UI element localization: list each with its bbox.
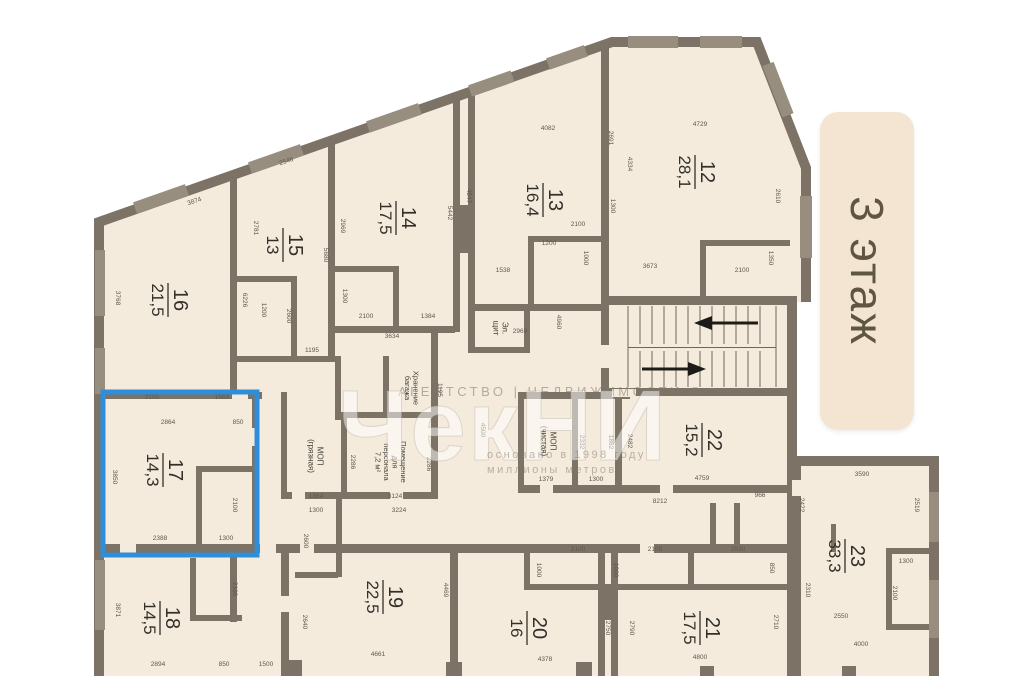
dimension-label: 2790 [628, 621, 635, 636]
dimension-label: 3224 [392, 507, 407, 514]
room-area: 17,5 [680, 611, 699, 644]
room-area: 21,5 [148, 283, 167, 316]
room-area: 16 [507, 619, 526, 638]
dimension-label: 2610 [774, 189, 781, 204]
dimension-label: 4729 [693, 121, 708, 128]
dimension-label: 2286 [349, 455, 356, 470]
dimension-label: 2600 [302, 534, 309, 549]
dimension-label: 2600 [285, 309, 292, 324]
room-number: 19 [384, 586, 406, 608]
dimension-label: 1000 [582, 251, 589, 266]
dimension-label: 3590 [855, 471, 870, 478]
dimension-label: 1384 [421, 313, 436, 320]
dimension-label: 966 [755, 492, 766, 499]
dimension-label: 8212 [653, 498, 668, 505]
dimension-label: 2750 [604, 621, 611, 636]
room-number: 18 [161, 607, 183, 629]
dimension-label: 1350 [767, 251, 774, 266]
dimension-label: 5680 [322, 248, 329, 263]
floor-badge: 3 этаж [820, 112, 914, 430]
dimension-label: 2100 [571, 221, 586, 228]
room-number: 13 [544, 189, 566, 211]
room-area: 16,4 [523, 183, 542, 216]
room-area: 17,5 [376, 201, 395, 234]
dimension-label: 850 [233, 419, 244, 426]
dimension-label: 4500 [479, 423, 486, 438]
dimension-label: 2310 [804, 583, 811, 598]
dimension-label: 2332 [578, 435, 585, 450]
dimension-label: 1300 [899, 558, 914, 565]
dimension-label: 2100 [145, 394, 160, 401]
room-number: 23 [846, 545, 868, 567]
dimension-label: 2550 [834, 613, 849, 620]
dimension-label: 1563 [215, 394, 230, 401]
room-number: 16 [169, 289, 191, 311]
dimension-label: 2286 [425, 457, 432, 472]
dimension-label: 2710 [772, 615, 779, 630]
dimension-label: 1379 [539, 476, 554, 483]
dimension-label: 4334 [626, 157, 633, 172]
dimension-label: 3871 [114, 603, 121, 618]
dimension-label: 2969 [513, 328, 528, 335]
dimension-label: 2969 [339, 219, 346, 234]
dimension-label: 2422 [798, 498, 805, 513]
room-area: 13 [263, 236, 282, 255]
dimension-label: 6226 [241, 293, 248, 308]
dimension-label: 2388 [153, 535, 168, 542]
dimension-label: 1200 [542, 240, 557, 247]
dimension-label: 1300 [589, 476, 604, 483]
dimension-label: 3124 [388, 493, 403, 500]
dimension-label: 4469 [442, 583, 449, 598]
dimension-label: 2100 [231, 582, 238, 597]
dimension-label: 3634 [385, 333, 400, 340]
dimension-label: 4759 [695, 475, 710, 482]
dimension-label: 1195 [305, 347, 319, 354]
dimension-label: 1000 [612, 563, 619, 578]
service-room-label: Эл.щит [492, 321, 510, 336]
svg-text:Хранениебагажа: Хранениебагажа [403, 371, 421, 405]
dimension-label: 1300 [219, 535, 234, 542]
dimension-label: 2894 [151, 661, 166, 668]
dimension-label: 5442 [446, 206, 453, 221]
dimension-label: 3673 [643, 263, 658, 270]
dimension-label: 3850 [111, 470, 118, 485]
room-area: 33,3 [825, 539, 844, 572]
dimension-label: 2100 [571, 546, 586, 553]
dimension-label: 1538 [496, 267, 511, 274]
room-number: 15 [284, 234, 306, 256]
dimension-label: 2519 [913, 498, 920, 513]
dimension-label: 2100 [891, 586, 898, 601]
room-number: 17 [164, 459, 186, 481]
dimension-label: 850 [219, 661, 230, 668]
dimension-label: 1862 [607, 435, 614, 450]
room-number: 12 [696, 161, 718, 183]
room-area: 22,5 [363, 580, 382, 613]
svg-text:Эл.щит: Эл.щит [492, 321, 510, 336]
dimension-label: 2864 [161, 419, 176, 426]
dimension-label: 1195 [436, 383, 443, 397]
dimension-label: 4547 [465, 189, 472, 204]
dimension-label: 2100 [735, 267, 750, 274]
dimension-label: 2100 [359, 313, 374, 320]
room-number: 21 [701, 617, 723, 639]
dimension-label: 1000 [535, 563, 542, 578]
dimension-label: 2691 [607, 131, 614, 146]
dimension-label: 3768 [114, 291, 121, 306]
dimension-label: 1300 [341, 289, 348, 304]
room-area: 28,1 [675, 155, 694, 188]
dimension-label: 4960 [555, 315, 562, 330]
room-number: 22 [703, 429, 725, 451]
service-room-label: Хранениебагажа [403, 371, 421, 405]
dimension-label: 1300 [309, 507, 324, 514]
dimension-label: 2530 [731, 546, 746, 553]
dimension-label: 2100 [648, 546, 663, 553]
dimension-label: 1200 [260, 303, 267, 318]
dimension-label: 1364 [309, 493, 324, 500]
dimension-label: 1300 [609, 199, 616, 214]
dimension-label: 2482 [626, 434, 633, 449]
dimension-label: 4000 [854, 641, 869, 648]
dimension-label: 4800 [693, 654, 708, 661]
room-area: 14,3 [143, 453, 162, 486]
dimension-label: 4378 [538, 656, 553, 663]
dimension-label: 2640 [301, 615, 308, 630]
dimension-label: 4082 [541, 125, 556, 132]
room-area: 15,2 [682, 423, 701, 456]
building-footprint [99, 42, 939, 676]
dimension-label: 2781 [252, 221, 259, 236]
dimension-label: 850 [768, 563, 775, 574]
room-area: 14,5 [140, 601, 159, 634]
floor-plan-screenshot: 1621,515131417,51316,41228,11714,32215,2… [0, 0, 1024, 676]
room-number: 14 [397, 207, 419, 229]
floor-badge-label: 3 этаж [840, 196, 894, 346]
dimension-label: 1500 [259, 661, 274, 668]
room-number: 20 [528, 617, 550, 639]
dimension-label: 4661 [371, 651, 386, 658]
dimension-label: 2100 [231, 498, 238, 513]
